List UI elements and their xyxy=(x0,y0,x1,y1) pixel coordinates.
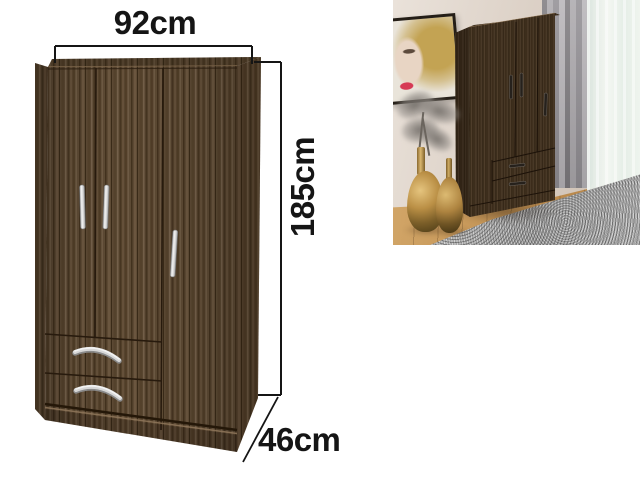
wardrobe-illustration xyxy=(0,0,390,480)
product-dimension-figure: 92cm 185cm 46cm xyxy=(0,0,640,480)
wardrobe-body xyxy=(35,57,261,452)
height-label: 185cm xyxy=(286,127,320,247)
sheer-curtain xyxy=(587,0,640,197)
depth-label: 46cm xyxy=(258,423,340,457)
room-inset-image xyxy=(393,0,640,245)
width-label: 92cm xyxy=(90,6,220,40)
